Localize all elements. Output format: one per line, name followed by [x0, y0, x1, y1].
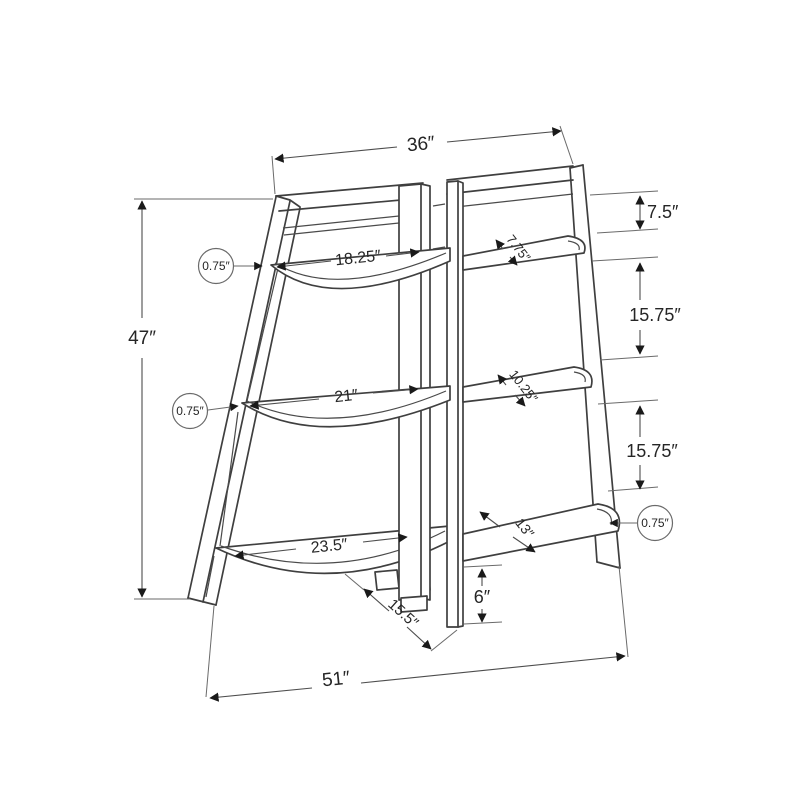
dim-top-shelf-gap: 7.5″ — [590, 191, 679, 233]
callout-label-thickness-side: 0.75″ — [641, 516, 669, 530]
dim-label-overall-height: 47″ — [128, 328, 156, 349]
dim-label-front-shelf-middle-width: 21″ — [334, 387, 359, 406]
dim-label-bottom-width: 51″ — [321, 668, 351, 692]
dim-label-post-foot-height: 6″ — [474, 587, 491, 607]
corner-gap-lines — [433, 204, 445, 249]
top-rail-right — [447, 166, 573, 208]
callout-thickness-side: 0.75″ — [610, 506, 673, 541]
dim-post-foot-height: 6″ — [464, 565, 502, 624]
furniture-dimension-diagram: 36″ 47″ 51″ 7.5″ 15.75″ 15.75″ — [0, 0, 800, 800]
dim-lower-shelf-spacing: 15.75″ — [598, 400, 678, 491]
dim-label-top-shelf-gap: 7.5″ — [647, 202, 679, 222]
callout-label-thickness-middle: 0.75″ — [176, 404, 204, 418]
dim-label-top-width: 36″ — [406, 133, 436, 157]
diagram-canvas: 36″ 47″ 51″ 7.5″ 15.75″ 15.75″ — [0, 0, 800, 800]
dim-label-lower-shelf-spacing: 15.75″ — [626, 441, 678, 461]
callout-thickness-top: 0.75″ — [199, 249, 263, 284]
callout-label-thickness-top: 0.75″ — [202, 259, 230, 273]
dim-upper-shelf-spacing: 15.75″ — [592, 257, 681, 360]
dim-label-upper-shelf-spacing: 15.75″ — [629, 305, 681, 325]
